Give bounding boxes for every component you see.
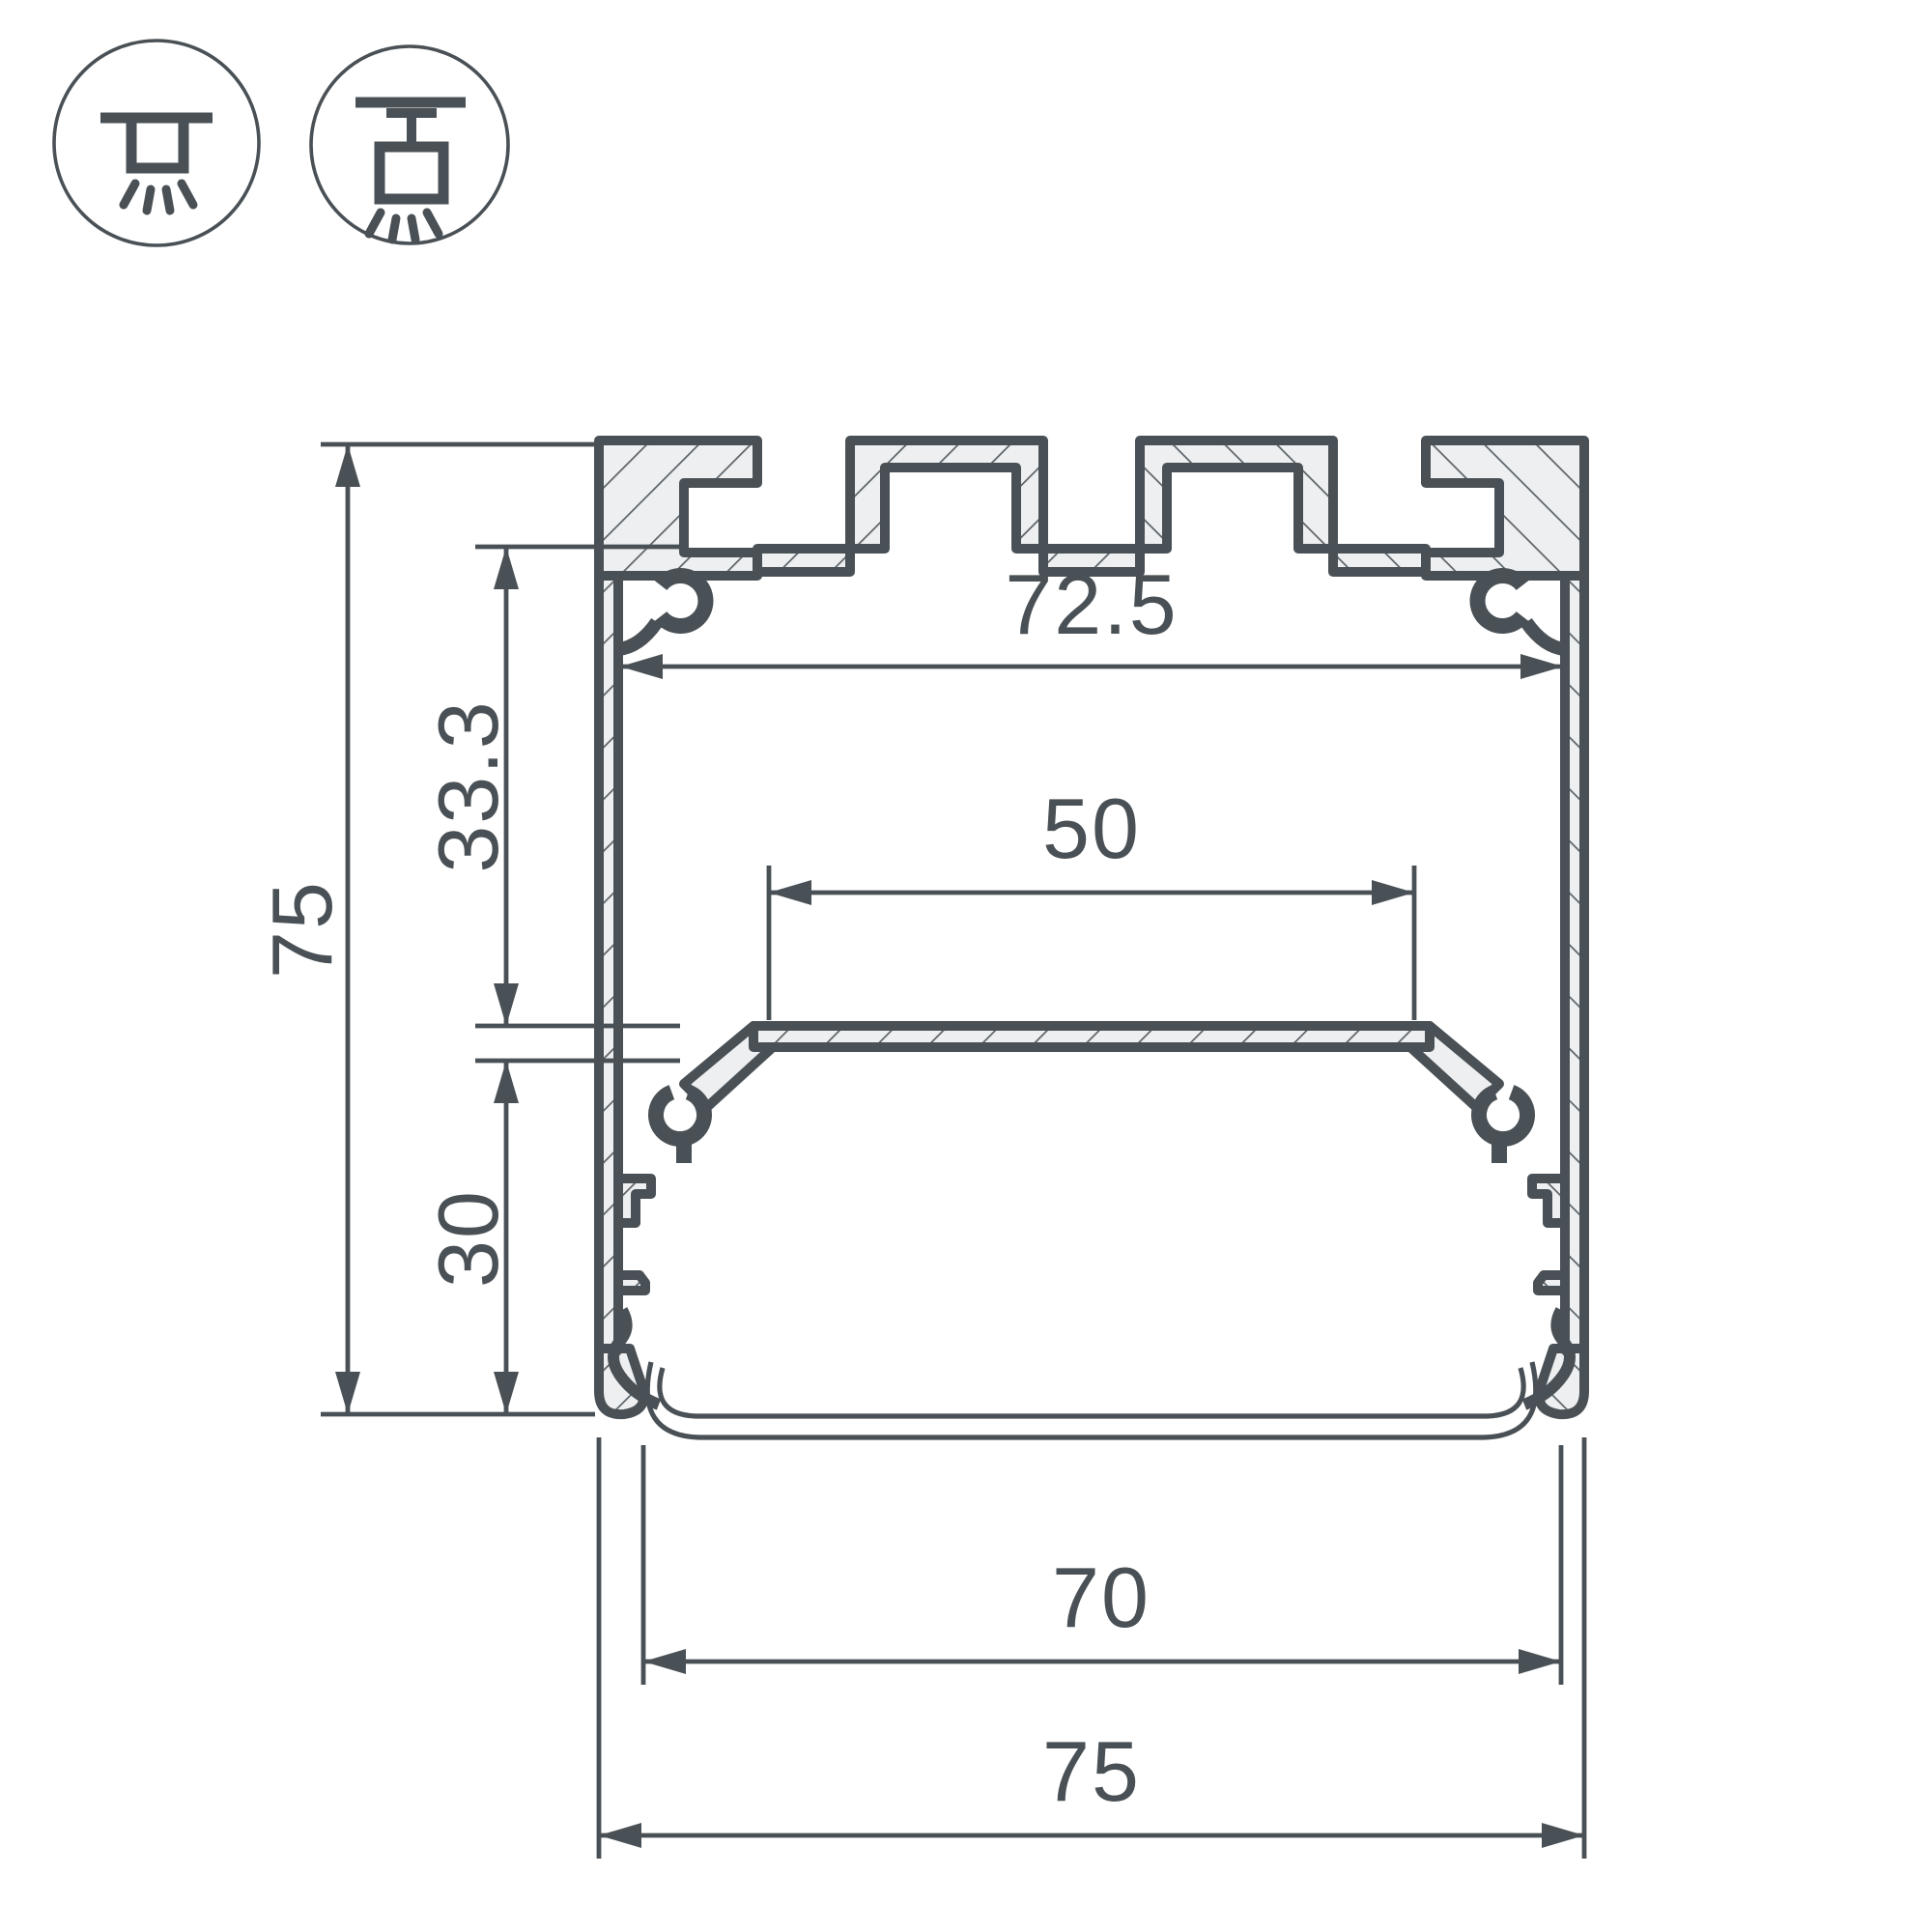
lower-depth-label: 30 [420, 1189, 516, 1288]
inner-width-label: 72.5 [1005, 556, 1178, 652]
boss-arm [618, 622, 657, 649]
light-rays-icon [369, 213, 439, 240]
light-rays-icon [124, 184, 193, 211]
diffuser-cover [647, 1362, 1536, 1437]
suspended-mount-icon [311, 46, 508, 243]
screw-boss-shelf [656, 1093, 704, 1139]
dimension-shelf-width [769, 866, 1414, 1020]
dimensions: 75 33.3 30 72.5 50 70 [254, 444, 1584, 1859]
overall-height-label: 75 [254, 880, 350, 979]
overall-width-label: 75 [1042, 1723, 1141, 1819]
top-slot-floor [757, 549, 850, 572]
screw-boss-top [661, 576, 705, 626]
top-corner-channel [599, 440, 757, 576]
mount-icons [54, 41, 508, 245]
profile-left-half [599, 440, 1043, 1414]
shelf-width-label: 50 [1042, 781, 1141, 876]
bottom-opening-label: 70 [1052, 1549, 1151, 1645]
profile-drawing-svg: 75 33.3 30 72.5 50 70 [0, 0, 1932, 1932]
top-plate [850, 440, 1043, 549]
technical-drawing-page: 75 33.3 30 72.5 50 70 [0, 0, 1932, 1932]
wall-clip [618, 1179, 651, 1223]
profile-right-half [1140, 440, 1584, 1414]
upper-depth-label: 33.3 [420, 699, 516, 872]
surface-mount-icon [54, 41, 259, 245]
wall-nub [618, 1275, 645, 1291]
led-shelf [753, 1026, 1430, 1047]
